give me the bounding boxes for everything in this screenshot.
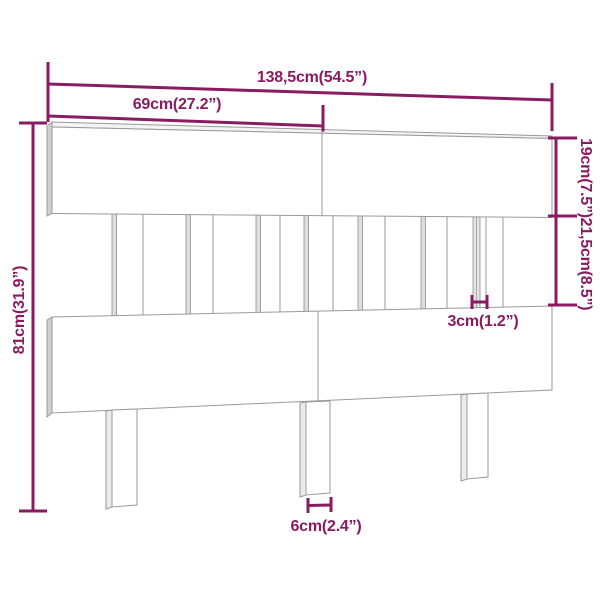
dimension-leg-width (308, 497, 331, 513)
dimension-label-top-board-height: 19cm(7.5”) (576, 138, 594, 218)
headboard-top-board (47, 122, 552, 218)
dimension-label-leg-width: 6cm(2.4”) (290, 518, 361, 536)
headboard-line-drawing (0, 0, 600, 600)
diagram-canvas: 138,5cm(54.5”) 69cm(27.2”) 81cm(31.9”) 1… (0, 0, 600, 600)
dimension-label-upper-board-width: 69cm(27.2”) (133, 96, 222, 114)
headboard-leg-right (461, 393, 488, 481)
dimension-label-slat-gap-width: 3cm(1.2”) (447, 313, 518, 331)
dimension-label-middle-section-height: 21,5cm(8.5”) (576, 218, 594, 311)
headboard-slats (112, 214, 503, 316)
headboard-leg-center (300, 401, 330, 497)
headboard-leg-left (106, 409, 137, 509)
dimension-label-total-height: 81cm(31.9”) (11, 266, 29, 355)
dimension-label-total-width: 138,5cm(54.5”) (257, 69, 367, 87)
